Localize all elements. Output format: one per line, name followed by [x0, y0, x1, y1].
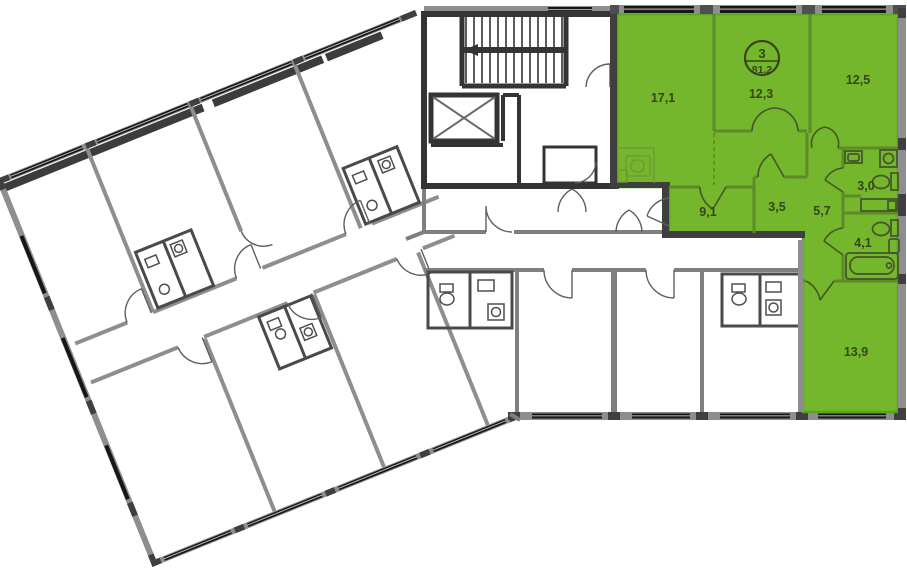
stair-core — [424, 6, 616, 186]
middle-wing-fixtures — [440, 280, 781, 320]
room-area-label-bedroom1: 12,3 — [749, 87, 773, 101]
room-area-label-kitchen: 13,9 — [844, 345, 868, 359]
room-area-label-wardrobe: 3,5 — [768, 200, 785, 214]
window-icon — [624, 6, 886, 13]
stairs-icon — [462, 14, 566, 86]
apartment-highlighted[interactable]: 17,1 12,3 12,5 9,1 3,5 5,7 3,0 4,1 13,9 … — [610, 5, 906, 418]
core-door-arcs — [575, 64, 610, 183]
floor-plan: 17,1 12,3 12,5 9,1 3,5 5,7 3,0 4,1 13,9 … — [0, 0, 907, 569]
apartment-top-wall — [610, 5, 906, 14]
left-wing-top-wall — [0, 10, 421, 192]
room-area-label-living: 17,1 — [651, 91, 675, 105]
window-icon — [10, 17, 400, 178]
middle-wing-door-arcs — [486, 189, 674, 298]
room-area-label-corridor: 5,7 — [813, 204, 830, 218]
room-area-label-hall: 9,1 — [699, 205, 716, 219]
left-wing-corridor-walls — [75, 197, 454, 383]
left-wing-end-wall — [0, 177, 158, 567]
badge-rooms-count: 3 — [758, 46, 765, 61]
left-wing-bottom-wall — [150, 414, 518, 567]
room-area-label-bath2: 4,1 — [854, 236, 871, 250]
floor-plan-canvas: 17,1 12,3 12,5 9,1 3,5 5,7 3,0 4,1 13,9 … — [0, 0, 907, 569]
room-area-label-bedroom2: 12,5 — [846, 73, 870, 87]
elevator-icon — [431, 95, 497, 141]
left-wing-fixtures — [143, 156, 442, 385]
apartment-right-wall — [898, 8, 906, 418]
room-area-label-bath1: 3,0 — [857, 179, 874, 193]
badge-total-area: 81,2 — [752, 64, 773, 76]
left-wing-bathrooms — [135, 147, 457, 403]
